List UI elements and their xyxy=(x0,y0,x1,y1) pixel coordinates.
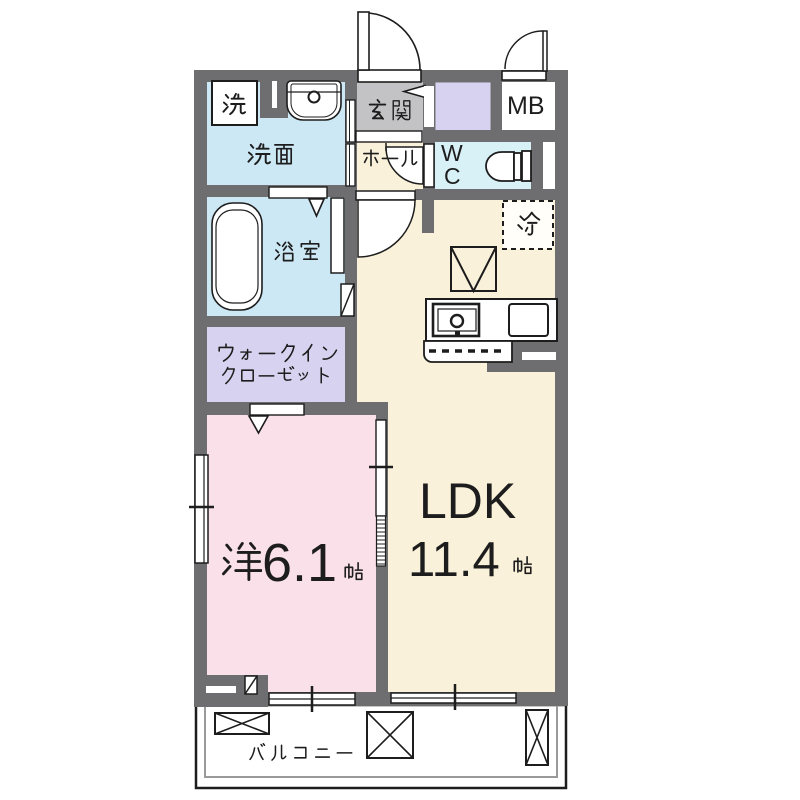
svg-text:11.4: 11.4 xyxy=(408,533,500,587)
svg-text:MB: MB xyxy=(507,92,545,120)
svg-text:LDK: LDK xyxy=(419,473,516,529)
svg-text:6.1: 6.1 xyxy=(262,533,337,593)
svg-text:C: C xyxy=(444,163,461,189)
